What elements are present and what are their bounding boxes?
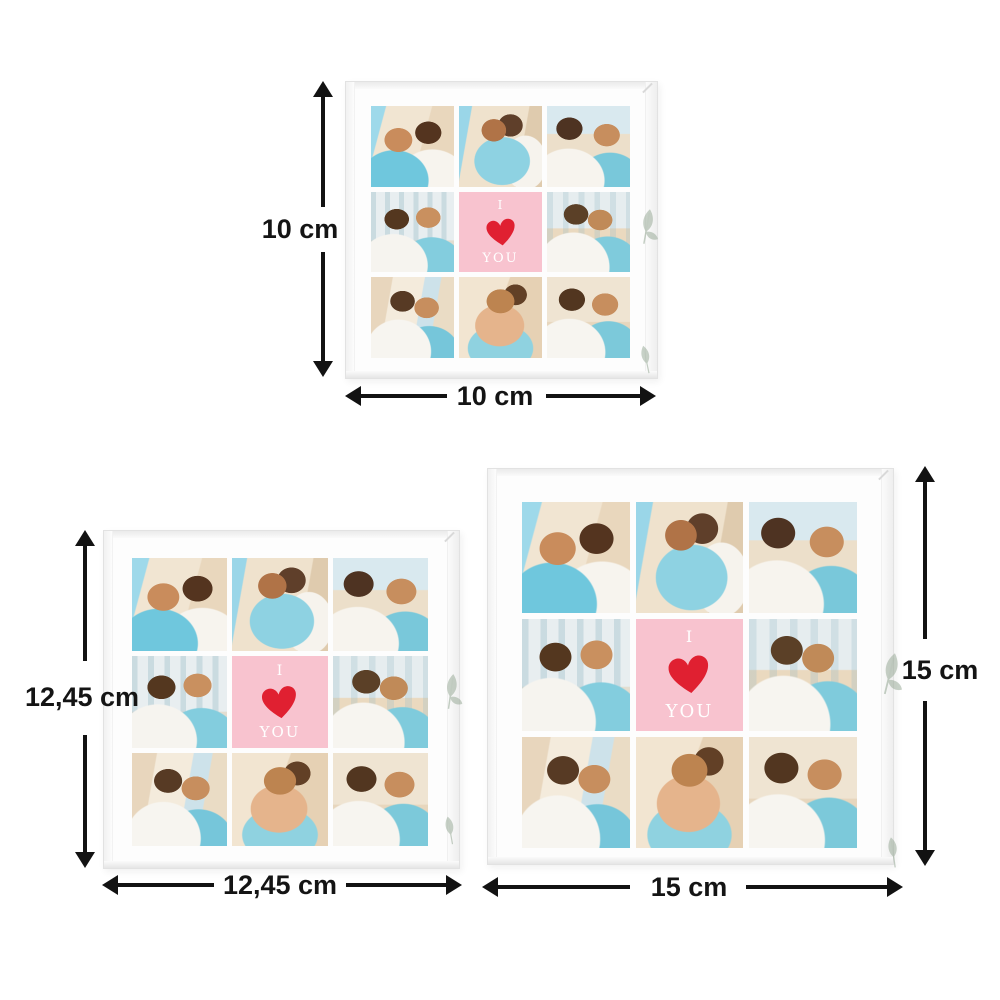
photo-tile (132, 753, 227, 846)
arrow-left-icon (345, 386, 361, 406)
love-tile-line1: I (277, 664, 284, 678)
arrow-left-icon (102, 875, 118, 895)
photo-tile (459, 106, 542, 187)
photo-tile (522, 737, 630, 848)
photo-tile (636, 502, 744, 613)
height-dimension-label-small: 10 cm (252, 213, 348, 245)
photo-tile (749, 619, 857, 730)
photo-tile (459, 277, 542, 358)
dimension-line (83, 545, 87, 661)
leaf-icon (435, 810, 465, 850)
photo-tile (333, 753, 428, 846)
dimension-line (746, 885, 887, 889)
photo-tile (636, 737, 744, 848)
photo-tile (522, 502, 630, 613)
dimension-line (923, 701, 927, 850)
block-top-edge (488, 469, 893, 476)
dimension-line (118, 883, 214, 887)
photo-tile (749, 502, 857, 613)
width-dimension-label-large: 15 cm (641, 871, 737, 903)
love-tile-line1: I (686, 629, 693, 645)
dimension-line (361, 394, 447, 398)
width-dimension-label-small: 10 cm (447, 380, 543, 412)
love-tile-line2: YOU (260, 725, 301, 740)
photo-tile (333, 558, 428, 651)
corner-highlight (878, 470, 889, 481)
dimension-line (498, 885, 630, 889)
leaf-icon (433, 666, 469, 716)
photo-tile (749, 737, 857, 848)
arrow-down-icon (313, 361, 333, 377)
corner-highlight (642, 83, 653, 94)
width-dimension-label-medium: 12,45 cm (222, 869, 338, 901)
dimension-line (546, 394, 640, 398)
block-bottom-edge (104, 861, 459, 868)
arrow-up-icon (313, 81, 333, 97)
dimension-line (83, 735, 87, 853)
height-dimension-label-large: 15 cm (893, 654, 987, 686)
photo-block-large: I YOU (487, 468, 894, 865)
block-bottom-edge (346, 371, 657, 378)
photo-tile (132, 558, 227, 651)
block-bottom-edge (488, 857, 893, 864)
center-love-tile: I YOU (636, 619, 744, 730)
photo-collage: I YOU (371, 106, 630, 358)
love-tile-line2: YOU (666, 703, 714, 721)
center-love-tile: I YOU (232, 656, 327, 749)
product-size-diagram: I YOU 10 cm 10 cm (0, 0, 1000, 1000)
arrow-down-icon (915, 850, 935, 866)
corner-highlight (444, 532, 455, 543)
photo-tile (547, 277, 630, 358)
dimension-line (923, 481, 927, 639)
arrow-right-icon (640, 386, 656, 406)
love-tile-line1: I (498, 199, 504, 211)
photo-tile (132, 656, 227, 749)
block-top-edge (346, 82, 657, 89)
heart-icon (665, 652, 713, 695)
photo-tile (232, 558, 327, 651)
photo-collage: I YOU (132, 558, 428, 846)
arrow-left-icon (482, 877, 498, 897)
dimension-line (321, 252, 325, 361)
photo-tile (371, 277, 454, 358)
block-left-edge (488, 469, 497, 864)
leaf-icon (877, 830, 908, 873)
photo-tile (371, 192, 454, 273)
leaf-icon (629, 203, 666, 250)
love-tile-line2: YOU (482, 252, 518, 265)
arrow-up-icon (915, 466, 935, 482)
photo-block-small: I YOU (345, 81, 658, 379)
arrow-right-icon (887, 877, 903, 897)
arrow-up-icon (75, 530, 95, 546)
height-dimension-label-medium: 12,45 cm (18, 681, 146, 713)
heart-icon (259, 683, 300, 720)
arrow-down-icon (75, 852, 95, 868)
photo-tile (547, 106, 630, 187)
photo-tile (522, 619, 630, 730)
dimension-line (321, 96, 325, 207)
dimension-line (346, 883, 446, 887)
block-top-edge (104, 531, 459, 538)
center-love-tile: I YOU (459, 192, 542, 273)
arrow-right-icon (446, 875, 462, 895)
photo-block-medium: I YOU (103, 530, 460, 869)
photo-tile (371, 106, 454, 187)
heart-icon (484, 216, 518, 247)
photo-tile (547, 192, 630, 273)
photo-collage: I YOU (522, 502, 857, 848)
photo-tile (232, 753, 327, 846)
photo-tile (333, 656, 428, 749)
